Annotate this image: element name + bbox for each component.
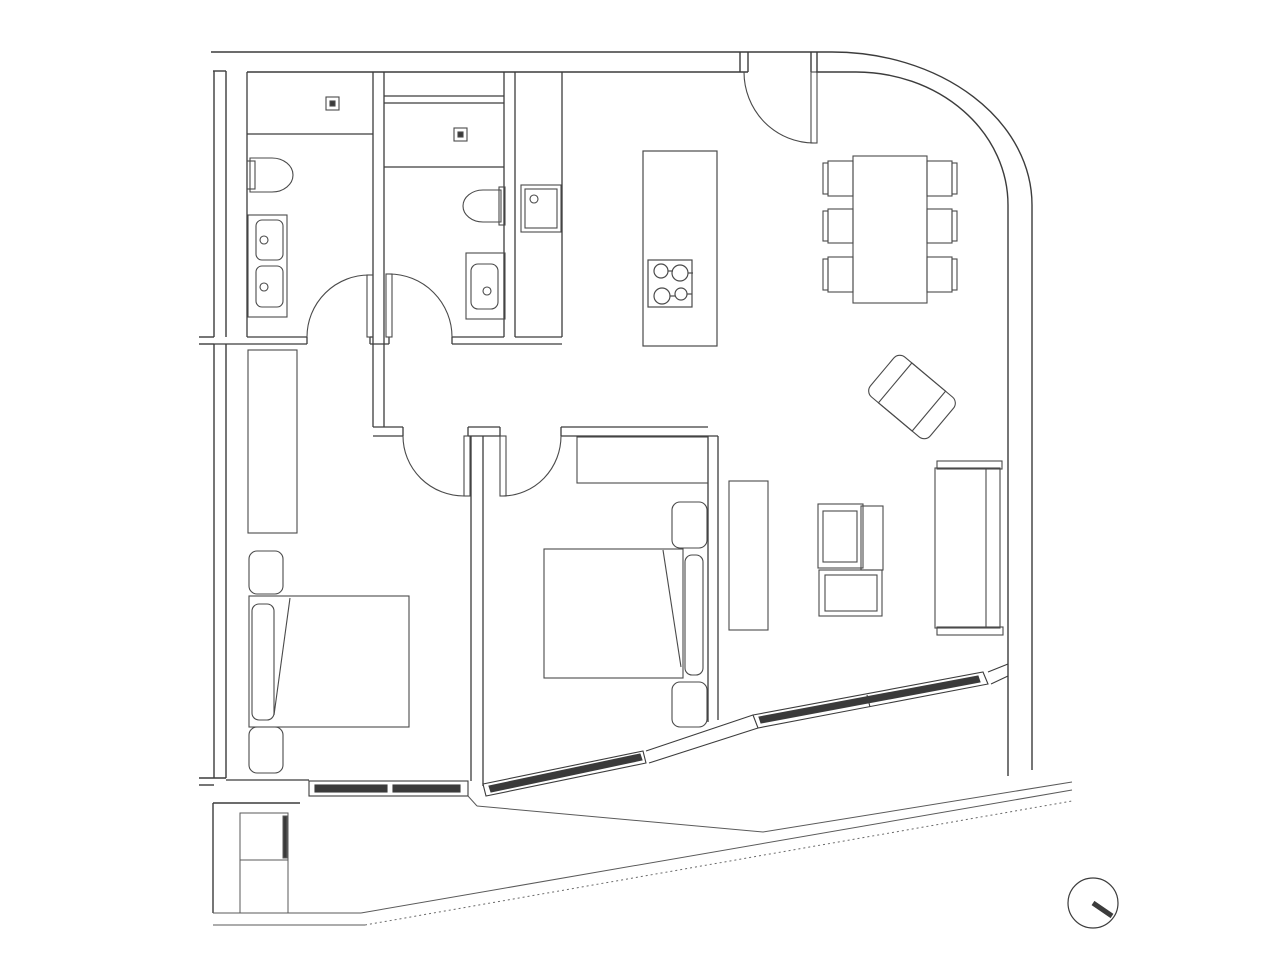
floor-plan-canvas <box>0 0 1280 960</box>
layer-bedroom-2-furniture <box>544 437 708 727</box>
layer-dining-set <box>823 156 957 303</box>
layer-north-compass <box>1068 878 1118 928</box>
layer-living-room-furniture <box>729 352 1003 635</box>
layer-terrace-site-lines <box>213 782 1072 925</box>
layer-bedroom-1-furniture <box>248 350 409 773</box>
layer-bathroom-fixtures <box>247 97 561 319</box>
layer-window-glazing <box>309 664 1008 796</box>
floor-plan-page <box>0 0 1280 960</box>
floor-plan-svg <box>0 0 1280 960</box>
layer-kitchen-island <box>643 151 717 346</box>
